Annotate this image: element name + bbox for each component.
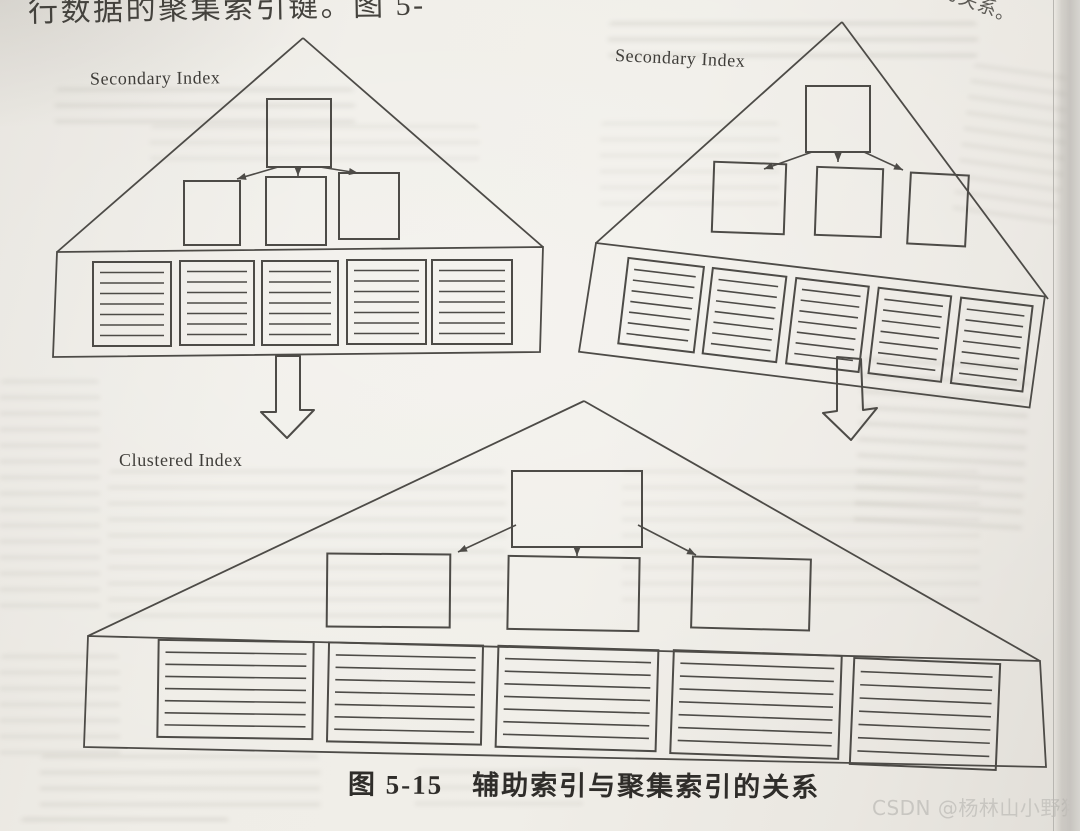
page-edge <box>1053 0 1080 831</box>
pointer-arrow-icon <box>638 525 696 555</box>
pointer-arrow-icon <box>294 167 301 176</box>
leaf-band <box>579 243 1045 408</box>
leaf-page <box>869 288 952 382</box>
leaf-page <box>951 298 1033 392</box>
branch-page <box>712 162 786 234</box>
leaf-page <box>670 650 841 759</box>
root-page <box>806 86 870 152</box>
down-block-arrow-icon <box>261 356 314 438</box>
leaf-page <box>157 640 313 739</box>
secondary-index-left-label: Secondary Index <box>90 67 221 89</box>
branch-page <box>907 173 969 247</box>
index-relationship-diagram <box>0 0 1080 831</box>
leaf-page <box>93 262 171 346</box>
book-page-photo: 行数据的聚集索引键。图 5- 索引的关系。 Secondary Index Se… <box>0 0 1080 831</box>
branch-page <box>327 553 451 627</box>
leaf-page <box>703 268 787 362</box>
leaf-page <box>180 261 254 345</box>
leaf-page <box>347 260 426 344</box>
root-page <box>512 471 642 547</box>
pointer-arrow-icon <box>764 152 812 169</box>
leaf-page <box>432 260 512 344</box>
figure-caption: 图 5-15 辅助索引与聚集索引的关系 <box>348 762 821 804</box>
leaf-page <box>850 658 1000 770</box>
branch-page <box>507 556 639 631</box>
branch-page <box>691 556 811 630</box>
csdn-watermark: CSDN @杨林山小野猪 <box>872 792 1080 821</box>
secondary-index-left-diagram <box>53 38 543 438</box>
clustered-index-label: Clustered Index <box>119 450 242 471</box>
leaf-page <box>262 261 338 345</box>
pointer-arrow-icon <box>864 152 903 170</box>
pointer-arrow-icon <box>834 152 841 162</box>
branch-page <box>815 167 883 237</box>
leaf-page <box>327 642 483 744</box>
pointer-arrow-icon <box>573 547 580 556</box>
leaf-page <box>618 258 704 352</box>
root-page <box>267 99 331 167</box>
pointer-arrow-icon <box>458 525 516 552</box>
secondary-index-right-diagram <box>579 22 1048 440</box>
branch-page <box>339 173 399 239</box>
leaf-page <box>496 646 659 751</box>
branch-page <box>266 177 326 245</box>
branch-page <box>184 181 240 245</box>
